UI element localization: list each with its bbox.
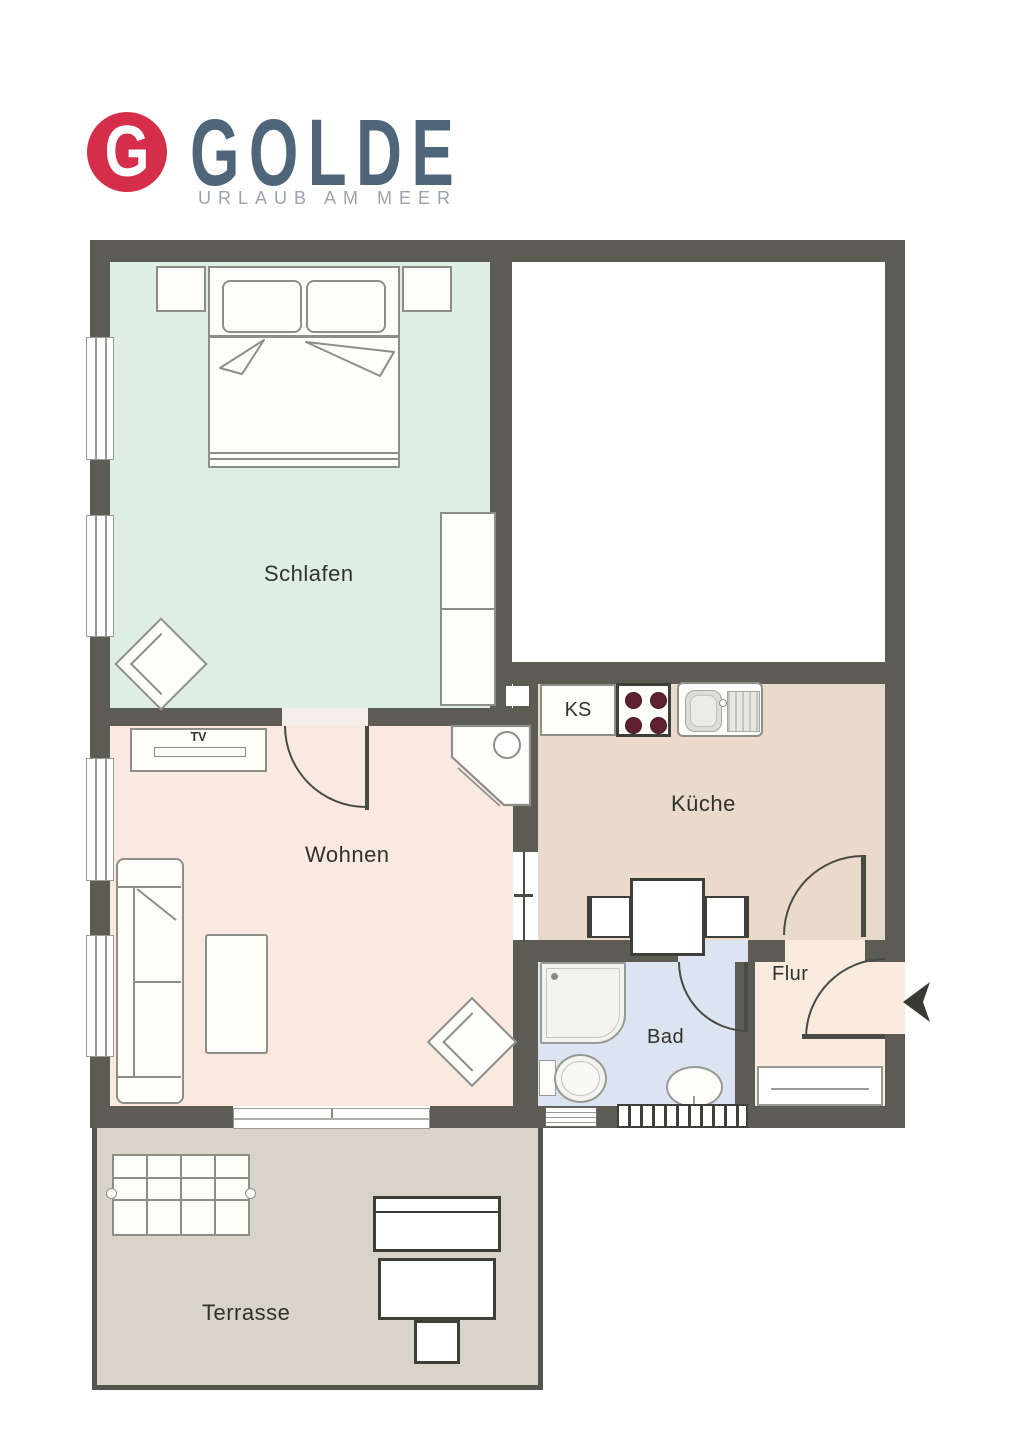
terrace-sliding-door (233, 1108, 430, 1129)
kitchen-table (630, 878, 705, 956)
kitchen-sink-unit (677, 682, 763, 737)
entrance-arrow-icon (903, 982, 930, 1022)
window-wohnen-1 (86, 758, 114, 881)
wall-kueche-north (490, 662, 905, 684)
room-label-bad: Bad (647, 1026, 684, 1049)
sofa (116, 858, 184, 1104)
beach-chair (112, 1154, 250, 1236)
pillow-right (306, 280, 386, 333)
fridge-unit: KS (540, 684, 616, 736)
faucet-icon (719, 699, 727, 707)
empty-room-floor (512, 262, 885, 662)
burner-icon (650, 692, 667, 709)
wall-schlafen-south-a (110, 708, 282, 726)
room-label-flur: Flur (772, 963, 808, 986)
wardrobe (440, 512, 496, 706)
entrance-door-opening (885, 962, 905, 1034)
wall-shaft-notch (506, 686, 529, 706)
window-schlafen-1 (86, 337, 114, 460)
room-label-schlafen: Schlafen (264, 561, 354, 587)
kueche-door-opening (785, 940, 865, 962)
shower (540, 962, 626, 1044)
window-schlafen-2 (86, 515, 114, 637)
stove (616, 683, 671, 737)
floor-plan-page: G GOLDE URLAUB AM MEER (0, 0, 1017, 1440)
room-label-terrasse: Terrasse (202, 1300, 290, 1326)
wall-bottom-left (90, 1106, 233, 1128)
radiator-small (545, 1107, 597, 1127)
tv-screen (154, 747, 246, 757)
window-wohnen-2 (86, 935, 114, 1057)
terrace-stool (414, 1320, 460, 1364)
toilet-bowl (554, 1054, 607, 1103)
wall-top (90, 240, 905, 262)
wall-schlafen-south-b (368, 708, 513, 726)
room-label-wohnen: Wohnen (305, 842, 390, 868)
nightstand-right (402, 266, 452, 312)
kitchen-chair-right (705, 896, 749, 938)
floor-plan: TV KS (0, 0, 1017, 1440)
shower-drain-icon (551, 973, 558, 980)
room-label-kueche: Küche (671, 791, 736, 817)
terrace-table (378, 1258, 496, 1320)
schlafen-door-opening (282, 708, 368, 726)
wall-right-upper (885, 240, 905, 962)
tv-board: TV (130, 728, 267, 772)
tv-label: TV (191, 730, 207, 744)
sink-bowl (685, 690, 722, 732)
pass-through-line (523, 852, 525, 942)
pass-through-tick (514, 894, 533, 897)
nightstand-left (156, 266, 206, 312)
burner-icon (625, 692, 642, 709)
fridge-label: KS (565, 699, 592, 722)
wall-wohnen-kueche (513, 684, 538, 852)
burner-icon (625, 717, 642, 734)
coffee-table (205, 934, 268, 1054)
wall-bad-west (513, 962, 538, 1106)
hall-sideboard (757, 1066, 883, 1106)
radiator-large (617, 1104, 748, 1128)
sink-drainboard (727, 691, 760, 732)
kitchen-chair-left (587, 896, 631, 938)
terrace-bench (373, 1196, 501, 1252)
pillow-left (222, 280, 302, 333)
wall-south-b (748, 940, 785, 962)
burner-icon (650, 717, 667, 734)
